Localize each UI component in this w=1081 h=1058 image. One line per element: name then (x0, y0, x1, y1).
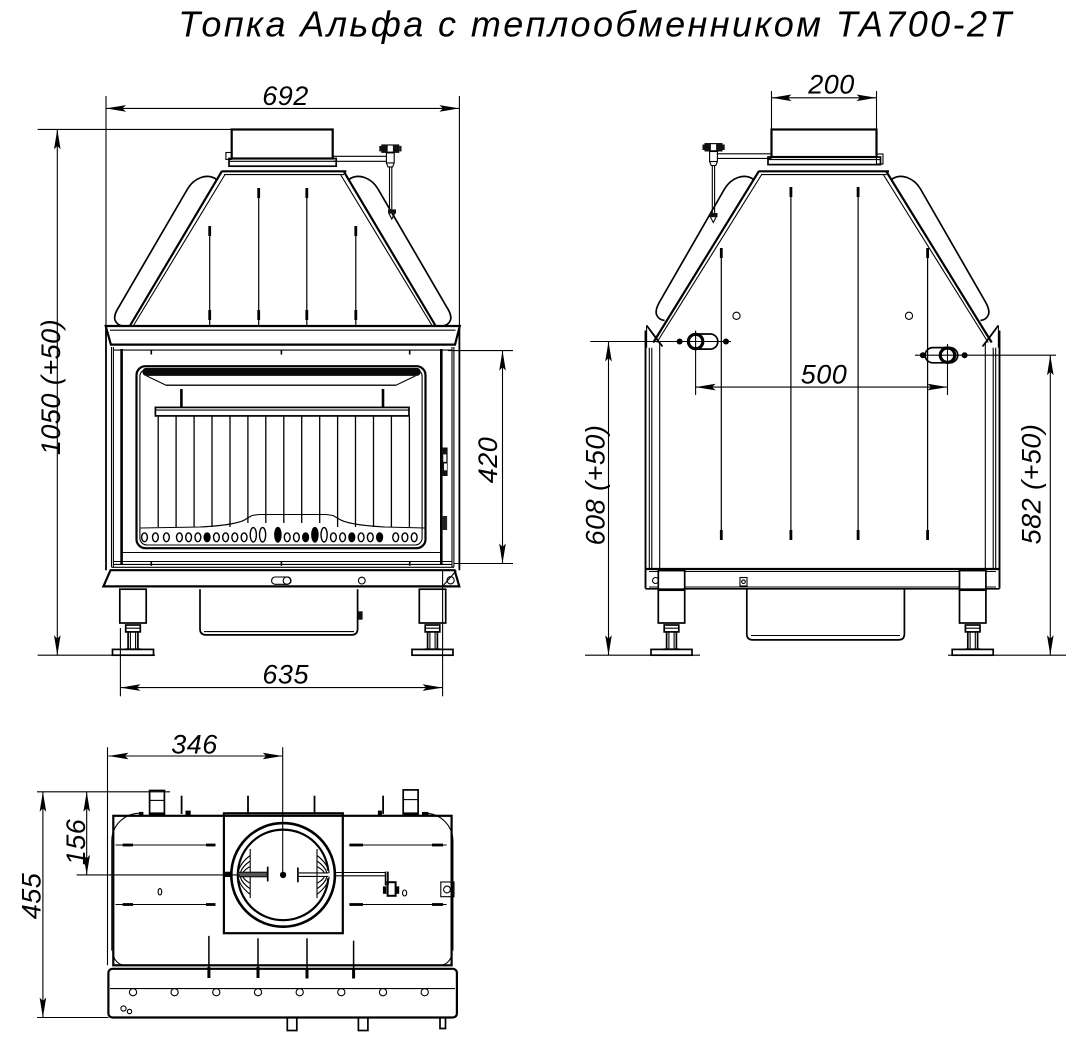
svg-text:635: 635 (262, 660, 309, 690)
svg-text:200: 200 (807, 70, 855, 100)
svg-text:455: 455 (17, 872, 47, 919)
svg-text:346: 346 (171, 730, 218, 760)
svg-text:500: 500 (801, 360, 848, 390)
svg-text:Топка Альфа с теплообменником: Топка Альфа с теплообменником ТА700-2Т (178, 4, 1014, 45)
svg-text:608 (+50): 608 (+50) (581, 425, 611, 546)
svg-text:156: 156 (61, 818, 91, 865)
svg-text:420: 420 (473, 437, 503, 484)
svg-text:1050 (+50): 1050 (+50) (36, 319, 66, 455)
svg-text:582 (+50): 582 (+50) (1017, 424, 1047, 545)
svg-text:692: 692 (262, 81, 309, 111)
